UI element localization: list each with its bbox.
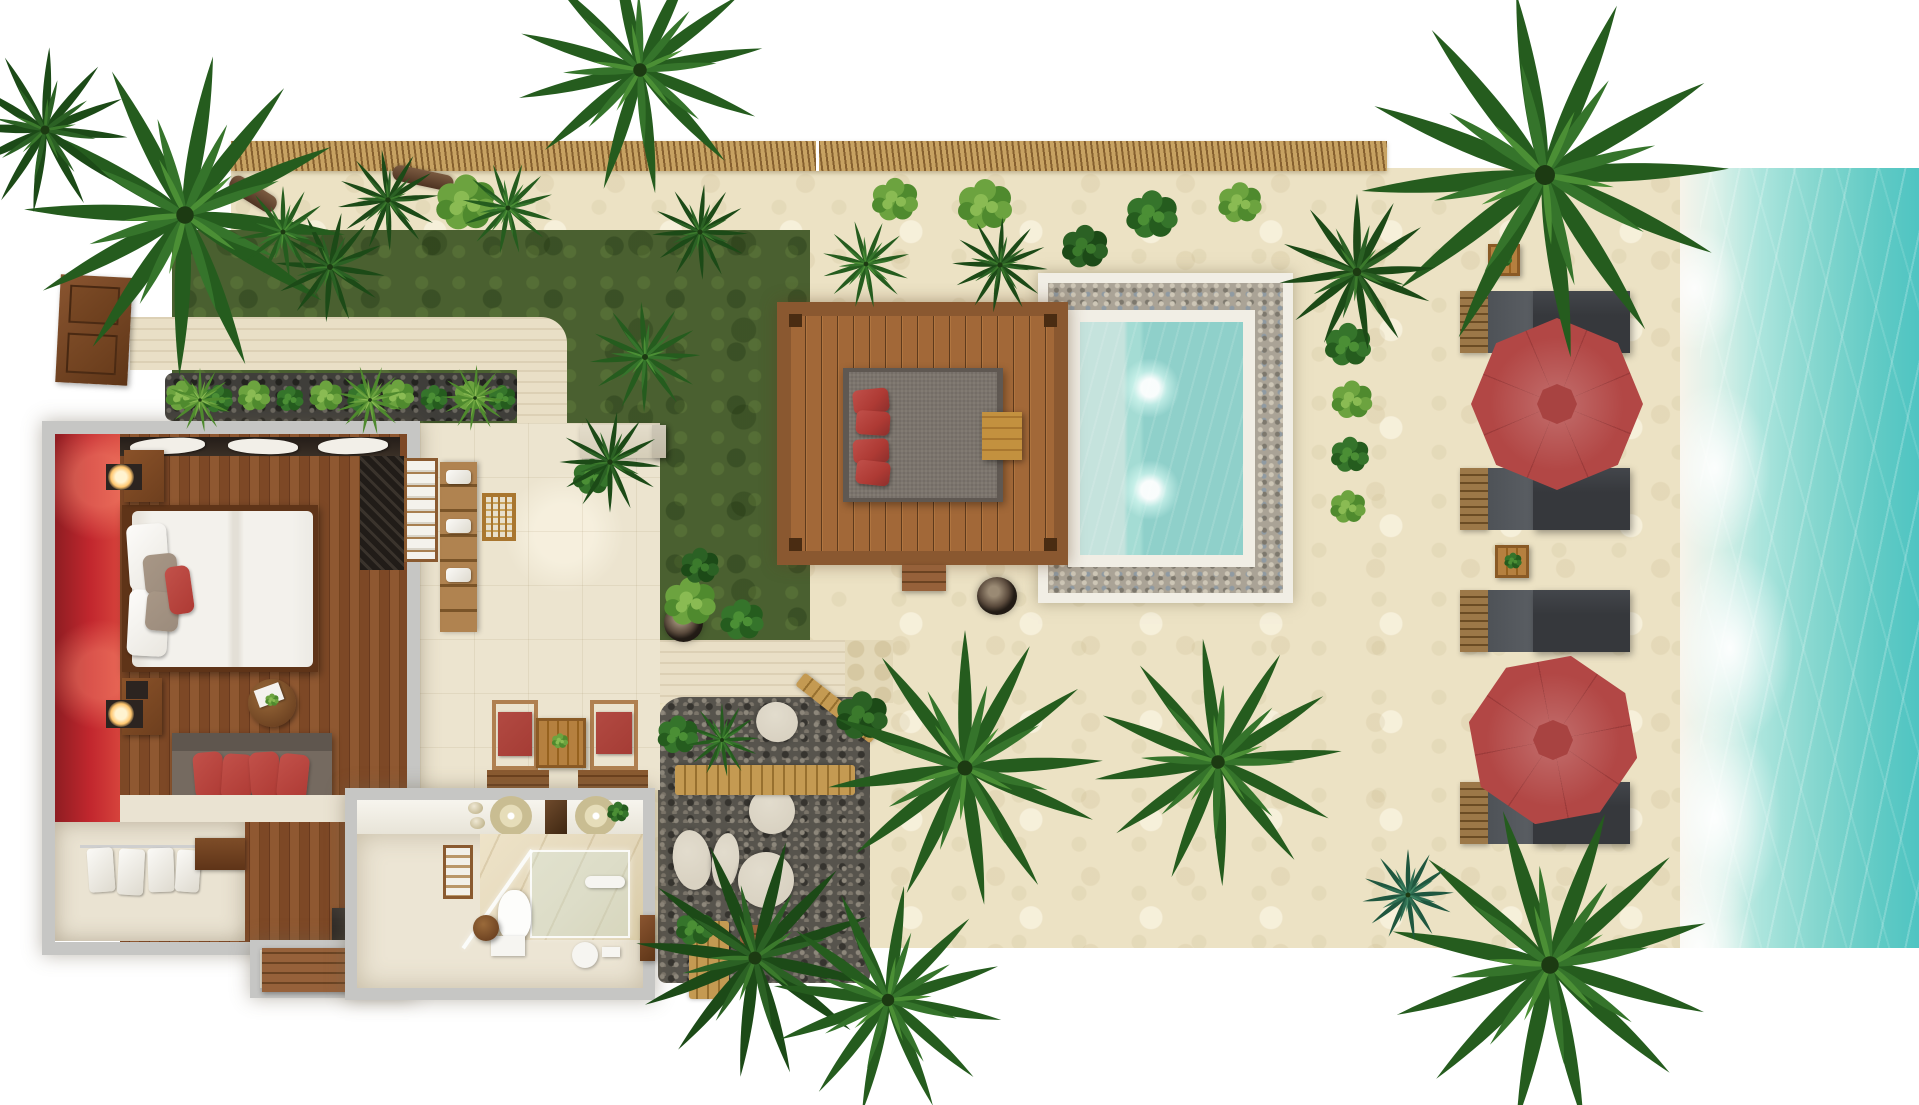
hanging-towel — [147, 848, 175, 893]
bathroom-stool — [473, 915, 499, 941]
lattice-wall-shelf — [482, 493, 516, 541]
lounger-headrest — [1488, 590, 1533, 652]
standing-mirror — [572, 942, 598, 968]
sun-lounger — [1533, 590, 1630, 652]
wall-shelf-column — [440, 462, 477, 632]
hanging-towel — [86, 847, 115, 893]
plunge-pool-water — [1080, 322, 1243, 555]
chair-red-cushion — [596, 712, 632, 754]
villa-floor-plan — [0, 0, 1919, 1105]
vanity-bowl — [470, 817, 485, 829]
deck-corner-post — [1044, 538, 1057, 551]
shower-glass — [530, 850, 630, 938]
red-accent-wall — [55, 434, 120, 822]
palm-tree — [0, 14, 162, 247]
shelf-towel — [446, 470, 471, 484]
daybed-pillow — [855, 459, 891, 486]
shelf-towel — [446, 568, 471, 582]
toilet-cabinet — [491, 936, 525, 956]
daybed-pillow — [855, 410, 891, 436]
planter-pot — [977, 577, 1017, 615]
lounger-table — [1488, 244, 1520, 276]
lounger-wood-frame — [1460, 590, 1488, 652]
terrace-table — [536, 718, 586, 768]
telephone — [126, 681, 148, 699]
vanity-mirror — [545, 800, 567, 834]
wooden-steps — [262, 948, 350, 992]
vanity-bowl — [468, 802, 483, 814]
deck-corner-post — [789, 314, 802, 327]
lamp-glow — [108, 701, 134, 727]
daybed-tray-table — [982, 412, 1022, 460]
towel-niche — [404, 458, 438, 562]
deck-corner-post — [1044, 314, 1057, 327]
towel-rack — [443, 845, 473, 899]
door-panel — [66, 333, 118, 376]
path-sand-transition — [845, 640, 893, 703]
bamboo-mat — [689, 921, 729, 999]
umbrella-cap — [1537, 384, 1577, 424]
travertine-path-connector — [517, 370, 567, 423]
lounger-table — [1495, 545, 1529, 578]
closet-counter — [195, 838, 245, 870]
chair-red-cushion — [498, 712, 532, 756]
bench-armrest — [652, 425, 666, 458]
dark-wardrobe — [360, 456, 404, 570]
umbrella-cap — [1533, 720, 1573, 760]
deck-steps — [902, 565, 946, 591]
lamp-glow — [108, 464, 134, 490]
round-sink — [490, 796, 532, 836]
bathroom-door — [640, 915, 655, 961]
pergola-gap — [816, 141, 819, 171]
toilet — [498, 890, 531, 940]
bamboo-walkway — [675, 765, 855, 795]
deck-corner-post — [789, 538, 802, 551]
door-panel — [68, 285, 120, 326]
hanging-towel — [117, 848, 145, 895]
fern-planting-bed — [165, 373, 517, 421]
wood-stool — [740, 925, 772, 963]
lounger-wood-frame — [1460, 782, 1488, 844]
ocean-wave-texture — [1700, 168, 1919, 948]
round-sink — [575, 796, 617, 836]
lounger-wood-frame — [1460, 468, 1488, 530]
bedroom-floor-strip — [120, 795, 350, 822]
stepping-stone — [738, 852, 794, 908]
planter-pot — [664, 604, 703, 642]
shower-shelf — [585, 876, 625, 888]
bath-accessories — [602, 947, 620, 957]
shelf-towel — [446, 519, 471, 533]
travertine-path — [130, 317, 567, 370]
entrance-door — [55, 274, 133, 386]
lounger-wood-frame — [1460, 291, 1488, 353]
